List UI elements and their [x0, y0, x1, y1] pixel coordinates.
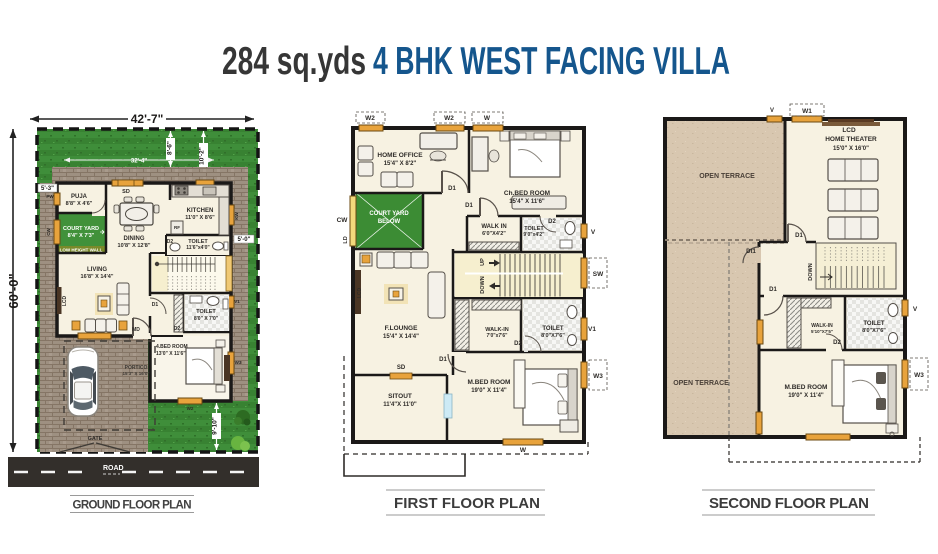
svg-text:Dt1: Dt1: [746, 249, 756, 255]
svg-text:M.BED ROOM: M.BED ROOM: [785, 384, 828, 391]
svg-text:UP: UP: [480, 258, 486, 266]
svg-text:16'8" X 14'4": 16'8" X 14'4": [81, 274, 114, 280]
svg-text:D1: D1: [439, 357, 447, 363]
svg-text:D1: D1: [769, 287, 777, 293]
svg-text:5'-3": 5'-3": [41, 186, 54, 192]
svg-text:D2: D2: [174, 326, 181, 332]
svg-text:7'0"x7'6": 7'0"x7'6": [486, 333, 508, 339]
svg-text:W1: W1: [802, 108, 812, 115]
svg-text:6'0"X4'2": 6'0"X4'2": [482, 231, 506, 237]
svg-text:LCD: LCD: [357, 287, 363, 298]
svg-text:D1: D1: [152, 302, 159, 308]
svg-text:LCD: LCD: [842, 127, 856, 134]
svg-text:V1: V1: [588, 326, 596, 333]
svg-text:V: V: [913, 306, 918, 313]
svg-text:SECOND FLOOR PLAN: SECOND FLOOR PLAN: [709, 495, 869, 512]
svg-text:D2: D2: [167, 239, 174, 245]
svg-text:KITCHEN: KITCHEN: [187, 208, 214, 214]
svg-text:19'0" X 11'4": 19'0" X 11'4": [788, 393, 824, 399]
svg-text:V: V: [591, 229, 596, 236]
svg-text:11'0" X 8'6": 11'0" X 8'6": [185, 215, 215, 221]
svg-text:TOILET: TOILET: [863, 321, 885, 327]
svg-text:284 sq.yds: 284 sq.yds: [222, 40, 366, 83]
svg-text:10'-2": 10'-2": [199, 147, 206, 165]
svg-text:F.LOUNGE: F.LOUNGE: [385, 325, 419, 332]
svg-text:11'6"x4'0": 11'6"x4'0": [186, 245, 210, 251]
svg-text:BELOW: BELOW: [378, 219, 401, 225]
svg-text:LD: LD: [343, 236, 349, 243]
svg-text:8'4" X 7'3": 8'4" X 7'3": [68, 233, 95, 239]
svg-text:SD: SD: [122, 189, 130, 195]
svg-text:15'0" X 16'0": 15'0" X 16'0": [833, 146, 869, 152]
svg-text:W3: W3: [914, 372, 924, 379]
svg-text:WALK IN: WALK IN: [481, 224, 506, 230]
svg-text:COURT YARD: COURT YARD: [63, 226, 99, 232]
svg-text:W2: W2: [444, 115, 454, 122]
svg-text:D1: D1: [795, 233, 803, 239]
svg-text:4 BHK WEST FACING VILLA: 4 BHK WEST FACING VILLA: [373, 40, 730, 83]
svg-text:W: W: [520, 447, 527, 454]
svg-text:CW: CW: [46, 228, 51, 236]
svg-text:42'-7": 42'-7": [131, 112, 164, 126]
svg-text:DINING: DINING: [124, 236, 145, 242]
svg-text:HOME OFFICE: HOME OFFICE: [377, 152, 423, 159]
svg-text:PUJA: PUJA: [71, 194, 88, 200]
svg-text:9'0"x4'2": 9'0"x4'2": [523, 232, 545, 238]
svg-text:OPEN TERRACE: OPEN TERRACE: [699, 173, 755, 180]
svg-text:PW: PW: [46, 194, 54, 199]
svg-text:8'0"X7'6": 8'0"X7'6": [862, 328, 886, 334]
svg-text:KW: KW: [234, 212, 239, 220]
svg-text:W2: W2: [187, 406, 194, 411]
svg-text:GROUND FLOOR PLAN: GROUND FLOOR PLAN: [73, 500, 192, 512]
svg-text:15'3" X 16'0": 15'3" X 16'0": [123, 371, 150, 376]
svg-text:8'0"X7'6": 8'0"X7'6": [541, 333, 565, 339]
svg-text:5'10"X7'5": 5'10"X7'5": [811, 329, 833, 334]
svg-text:DOWN: DOWN: [808, 263, 814, 280]
svg-text:15'4" X 14'4": 15'4" X 14'4": [383, 334, 419, 340]
svg-text:8'8" X 4'6": 8'8" X 4'6": [66, 201, 93, 207]
svg-text:Ch.BED ROOM: Ch.BED ROOM: [504, 190, 550, 197]
svg-text:W3: W3: [593, 373, 603, 380]
svg-text:8'-6": 8'-6": [167, 141, 174, 155]
svg-text:GATE: GATE: [88, 436, 103, 442]
svg-text:TOILET: TOILET: [542, 326, 564, 332]
svg-text:RF: RF: [174, 225, 180, 230]
svg-text:32'-4": 32'-4": [131, 159, 147, 165]
svg-text:SITOUT: SITOUT: [388, 393, 412, 400]
svg-text:CW: CW: [337, 217, 349, 224]
svg-text:8'0" X 7'0": 8'0" X 7'0": [194, 316, 219, 322]
svg-text:LIVING: LIVING: [87, 267, 107, 273]
svg-text:D2: D2: [514, 341, 522, 347]
svg-text:W2: W2: [365, 115, 375, 122]
svg-text:D1: D1: [465, 203, 473, 209]
svg-text:15'4" X 11'6": 15'4" X 11'6": [509, 199, 545, 205]
svg-text:TOILET: TOILET: [196, 309, 216, 315]
svg-text:W3: W3: [235, 360, 242, 365]
svg-text:LCD: LCD: [62, 295, 68, 306]
svg-text:V: V: [770, 108, 774, 114]
svg-text:SW: SW: [593, 271, 604, 278]
svg-text:M.BED ROOM: M.BED ROOM: [468, 379, 511, 386]
svg-text:DOWN: DOWN: [480, 276, 486, 293]
svg-text:ROAD: ROAD: [103, 465, 124, 472]
svg-text:W: W: [484, 115, 491, 122]
svg-text:OPEN TERRACE: OPEN TERRACE: [673, 380, 729, 387]
svg-text:10'8" X 12'8": 10'8" X 12'8": [118, 243, 151, 249]
svg-text:D2: D2: [548, 219, 556, 225]
svg-text:19'0" X 11'4": 19'0" X 11'4": [471, 388, 507, 394]
svg-text:9'-10": 9'-10": [212, 417, 219, 435]
svg-text:D2: D2: [833, 340, 841, 346]
svg-text:4.BED ROOM: 4.BED ROOM: [156, 344, 188, 350]
svg-text:COURT YARD: COURT YARD: [369, 211, 409, 217]
svg-text:60'-0": 60'-0": [6, 273, 21, 308]
svg-text:15'4" X 8'2": 15'4" X 8'2": [384, 161, 417, 167]
svg-text:V1: V1: [234, 299, 240, 304]
svg-text:MD: MD: [132, 327, 140, 333]
svg-text:FIRST FLOOR PLAN: FIRST FLOOR PLAN: [394, 495, 540, 512]
svg-text:SD: SD: [397, 365, 406, 371]
svg-text:D1: D1: [448, 186, 456, 192]
svg-text:5'-0": 5'-0": [238, 237, 251, 243]
svg-text:13'0" X 11'6": 13'0" X 11'6": [156, 351, 186, 357]
svg-text:HOME THEATER: HOME THEATER: [825, 136, 877, 143]
svg-text:11'4"X 11'0": 11'4"X 11'0": [383, 402, 417, 408]
